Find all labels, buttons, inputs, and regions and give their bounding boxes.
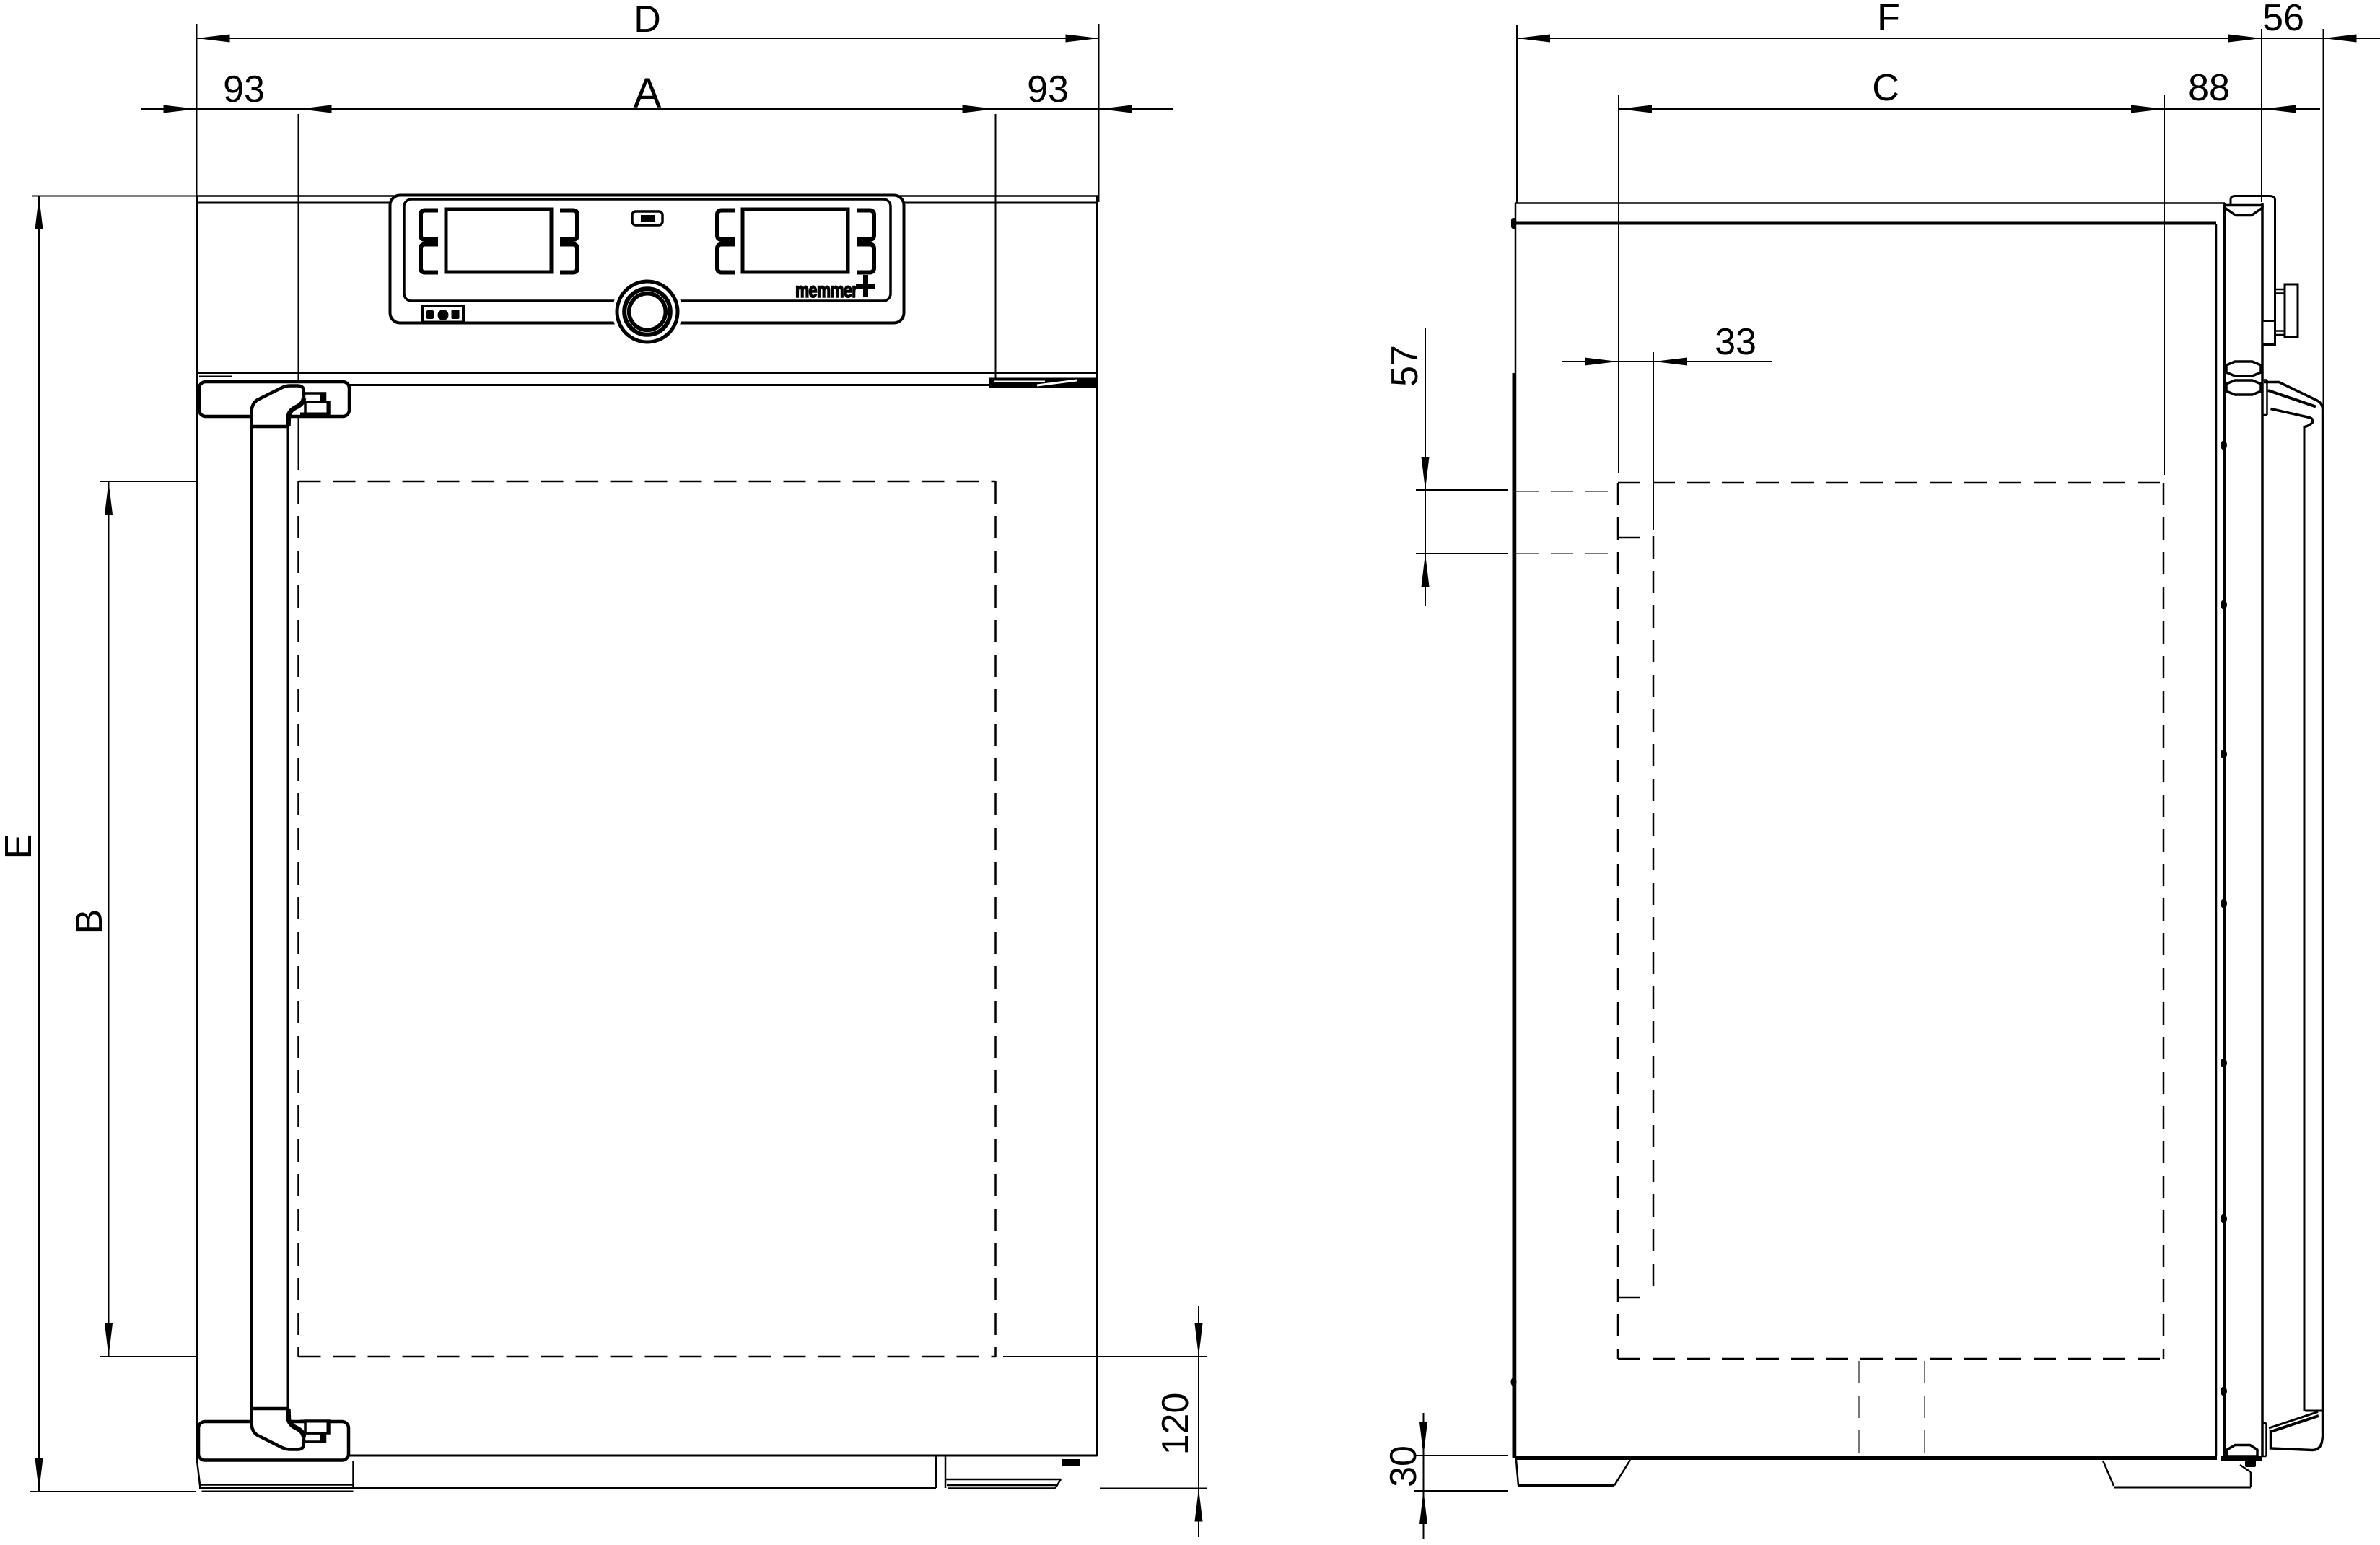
svg-text:E: E <box>0 834 40 859</box>
svg-text:30: 30 <box>1383 1445 1425 1487</box>
svg-text:33: 33 <box>1715 321 1756 363</box>
svg-text:93: 93 <box>1027 69 1069 110</box>
svg-text:93: 93 <box>223 69 265 110</box>
svg-text:A: A <box>634 70 662 117</box>
svg-text:B: B <box>69 909 110 935</box>
svg-text:D: D <box>634 0 661 40</box>
svg-text:88: 88 <box>2188 67 2230 109</box>
svg-text:memmer: memmer <box>795 279 858 302</box>
svg-text:120: 120 <box>1155 1393 1196 1456</box>
svg-text:56: 56 <box>2262 0 2304 39</box>
svg-text:C: C <box>1872 67 1899 109</box>
svg-text:57: 57 <box>1384 345 1426 387</box>
svg-text:F: F <box>1877 0 1900 39</box>
